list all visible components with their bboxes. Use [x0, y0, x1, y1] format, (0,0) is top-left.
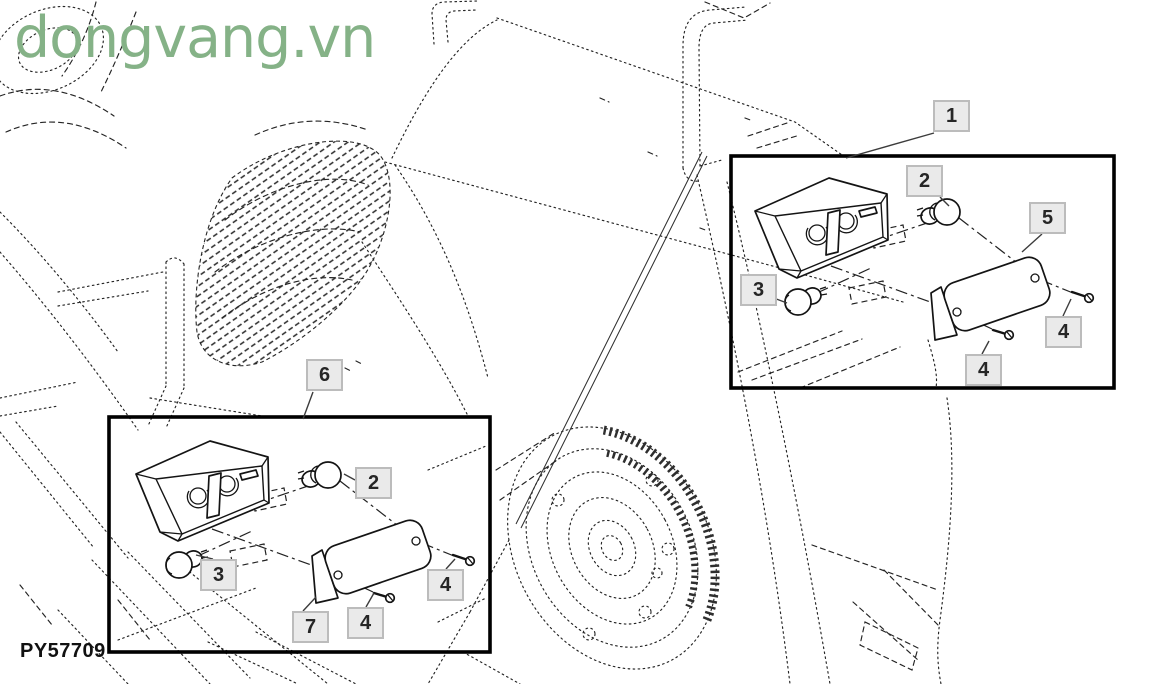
callout-5: 5	[1029, 202, 1066, 234]
callout-2-left: 2	[355, 467, 392, 499]
tractor-line-art	[0, 0, 1170, 684]
callout-7: 7	[292, 611, 329, 643]
part-code: PY57709	[20, 640, 106, 663]
callout-1: 1	[933, 100, 970, 132]
watermark: dongvang.vn	[14, 6, 375, 72]
callout-6: 6	[306, 359, 343, 391]
callout-4-left-a: 4	[347, 607, 384, 639]
callout-3-left: 3	[200, 559, 237, 591]
callout-3-right: 3	[740, 274, 777, 306]
lamp-assembly-left	[136, 441, 474, 603]
callout-2-right: 2	[906, 165, 943, 197]
parts-diagram-page: dongvang.vn 1 2 5 3 4 4 6 2 3 7 4 4 PY57…	[0, 0, 1170, 684]
background-line-art	[0, 0, 952, 684]
callout-4-right-b: 4	[965, 354, 1002, 386]
callout-4-left-b: 4	[427, 569, 464, 601]
callout-4-right-a: 4	[1045, 316, 1082, 348]
